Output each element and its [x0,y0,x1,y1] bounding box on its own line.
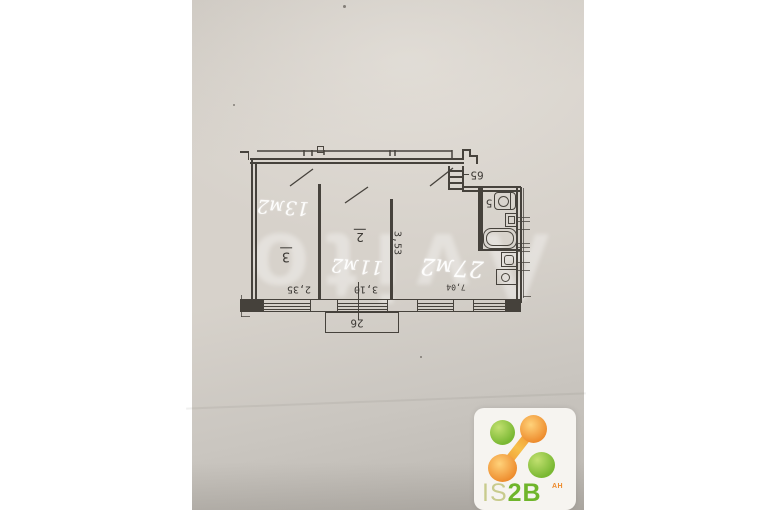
dimension-label: 2,35 [287,284,311,295]
wall-top-inner [250,162,464,164]
logo-orange-blob [520,415,547,443]
exterior-tick [518,251,530,252]
window-line [417,309,453,310]
pier-line [337,299,338,312]
toilet-tank-line [510,193,511,209]
exterior-tick [523,296,531,297]
window-line [473,306,505,307]
kitchen-sink-drain-icon [501,273,510,282]
bathtub-inner-icon [486,231,514,246]
corner-bracket [248,151,250,160]
exterior-tick [518,243,530,244]
balcony-label: 26 [350,317,363,330]
bathroom-label: 5 [486,197,493,210]
agency-logo-suffix: АН [552,483,563,491]
sink-basin-icon [508,216,515,224]
exterior-tick [518,270,530,271]
window-line [263,306,310,307]
pier-line [263,299,264,312]
pier-line [387,299,388,312]
window-line [337,309,387,310]
pier-line [453,299,454,312]
stairs-step [448,188,463,190]
entry-label-leader [463,174,469,175]
pier-line [473,299,474,312]
stove-burner-icon [504,255,514,265]
room-area-label: 13м2 [256,195,309,220]
logo-text-bold: 2B [508,479,542,507]
window-line [337,303,387,304]
pier-line [310,299,311,312]
logo-green-circle [528,452,555,478]
logo-text-light: IS [482,479,508,507]
wall-right-inner [516,187,518,303]
rail-end-tick [451,150,453,158]
wall-top-outer [250,158,464,160]
wall-bottom-corner [240,299,263,312]
entry-label: 65 [470,169,483,182]
window-line [263,309,310,310]
rail-tick [389,150,391,156]
window-line [417,303,453,304]
window-line [473,309,505,310]
room-number: 3 [280,248,292,263]
wall-left-outer [251,158,253,300]
photo-of-floor-plan: Avito [0,0,770,510]
window-line [473,303,505,304]
logo-orange-blob [488,454,517,482]
exterior-tick [518,262,530,263]
door-jamb-mark [317,146,324,153]
dimension-label-vertical: 3,53 [392,231,403,255]
wall-left-inner [255,162,257,300]
partition-wall [318,184,321,300]
bathroom-wall-top [462,186,521,188]
outside-line [241,295,242,317]
room-number: 2 [354,229,366,243]
dimension-label: 7,04 [446,283,465,292]
room-area-label: 11м2 [330,254,383,279]
window-line [417,306,453,307]
window-line [263,303,310,304]
dust-speck [233,104,235,106]
stairs-step [448,176,463,178]
dust-speck [420,356,422,358]
stairs-step [448,170,463,172]
balcony-rail-line [257,150,452,152]
rail-tick [311,150,313,156]
agency-logo-text: IS2B [482,481,542,506]
room-area-label: 27м2 [420,252,484,281]
toilet-bowl-icon [498,196,509,207]
dimension-label: 3,10 [354,284,378,295]
wall-right-outer [520,187,522,303]
dust-speck [343,5,346,8]
rail-tick [394,150,396,156]
logo-green-circle [490,420,515,445]
entry-frame [476,155,478,164]
stairs-step [448,182,463,184]
pier-line [417,299,418,312]
window-line [337,306,387,307]
bathroom-wall-bottom [479,249,521,251]
exterior-tick [518,247,530,248]
wall-bottom-corner [505,299,521,312]
exterior-tick [518,221,530,222]
rail-tick [303,150,305,156]
exterior-tick [518,229,530,230]
outside-line [241,316,250,317]
exterior-tick [518,217,530,218]
